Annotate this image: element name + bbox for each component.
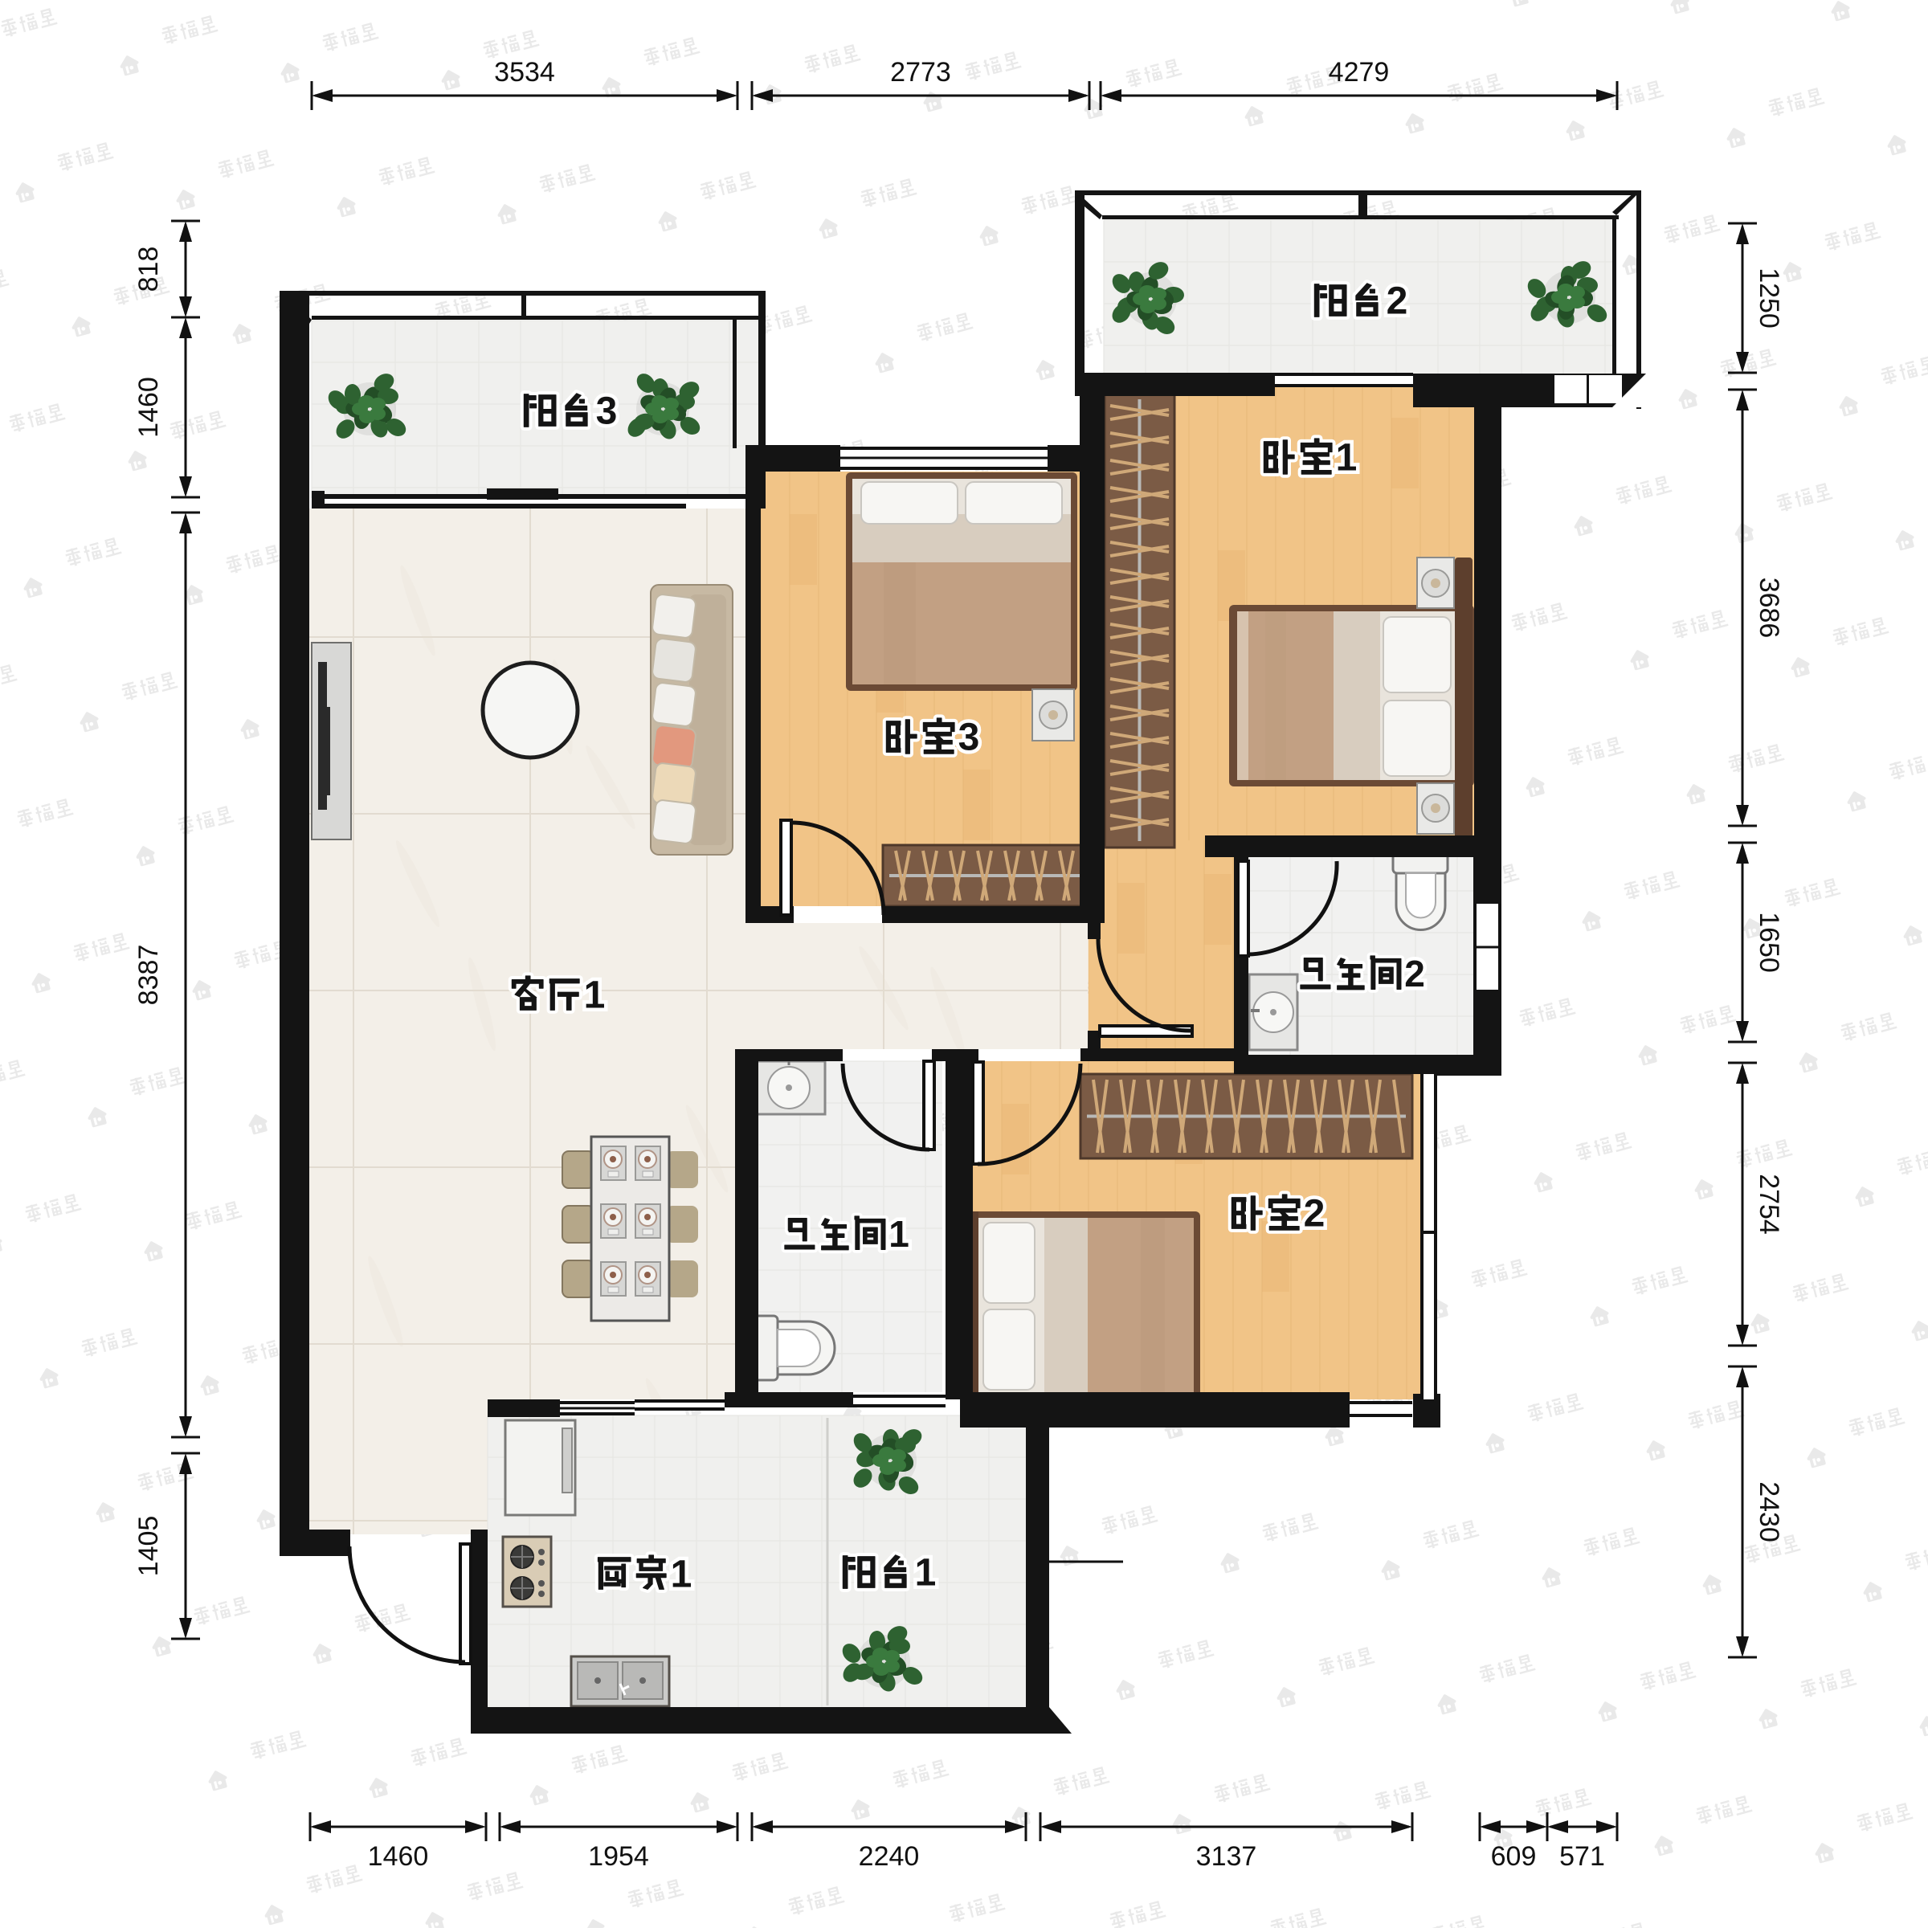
svg-text:609: 609 [1491,1841,1537,1872]
svg-text:818: 818 [133,247,164,292]
svg-text:2240: 2240 [859,1841,920,1872]
svg-text:3534: 3534 [494,57,555,88]
svg-text:1405: 1405 [133,1516,164,1577]
svg-text:1460: 1460 [368,1841,429,1872]
svg-text:1650: 1650 [1754,912,1784,973]
svg-text:3: 3 [596,390,618,433]
svg-text:1250: 1250 [1754,268,1784,329]
svg-text:1460: 1460 [133,377,164,438]
svg-text:1: 1 [1336,437,1358,480]
svg-text:1: 1 [584,974,606,1017]
svg-text:3137: 3137 [1196,1841,1257,1872]
svg-text:3686: 3686 [1754,578,1784,639]
svg-text:2: 2 [1304,1193,1325,1236]
svg-text:2430: 2430 [1754,1481,1784,1542]
svg-text:1: 1 [915,1552,937,1595]
svg-text:571: 571 [1559,1841,1605,1872]
svg-text:2: 2 [1404,953,1425,995]
svg-text:2773: 2773 [890,57,951,88]
svg-text:2754: 2754 [1754,1174,1784,1235]
svg-text:1: 1 [671,1554,692,1596]
svg-text:1: 1 [888,1213,909,1255]
svg-text:8387: 8387 [133,945,164,1006]
svg-text:2: 2 [1387,280,1408,323]
svg-text:4279: 4279 [1329,57,1390,88]
svg-text:3: 3 [958,717,980,759]
svg-text:1954: 1954 [588,1841,649,1872]
